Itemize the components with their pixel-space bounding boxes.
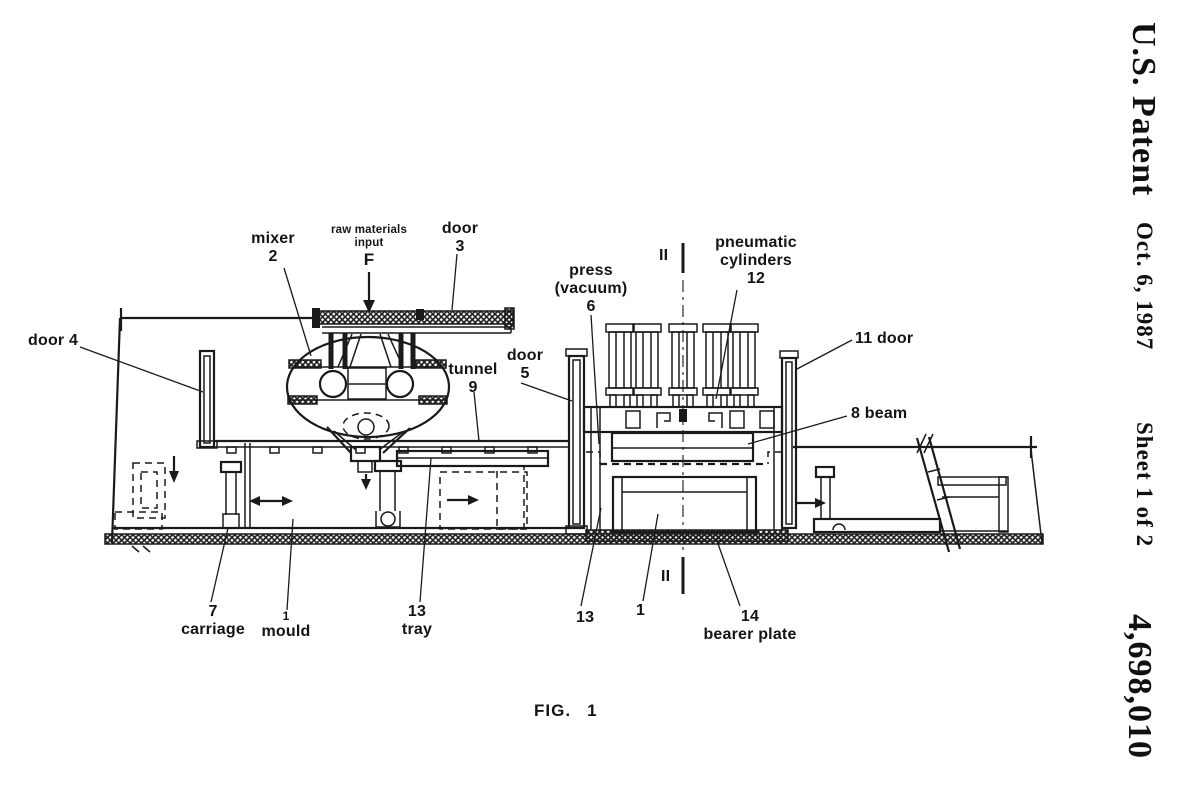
label-door-11: 11 door xyxy=(855,330,913,348)
label-bearer-plate-14: 14 bearer plate xyxy=(688,608,812,644)
label-pneumatic-cylinders-12: pneumatic cylinders 12 xyxy=(706,234,806,288)
label-tray-13: 13 tray xyxy=(394,603,440,639)
label-mixer-text: mixer xyxy=(242,230,304,248)
label-raw-materials-input: raw materials input F xyxy=(326,224,412,269)
patent-sheet-number: Sheet 1 of 2 xyxy=(1131,422,1157,547)
patent-page: mixer 2 raw materials input F door 3 doo… xyxy=(0,0,1200,800)
label-press-vacuum-6: press (vacuum) 6 xyxy=(552,262,630,316)
label-tunnel-9: tunnel 9 xyxy=(440,361,506,397)
label-door-3: door 3 xyxy=(434,220,486,256)
label-mould-1: 1 mould xyxy=(256,610,316,641)
figure-caption: FIG.1 xyxy=(534,701,598,721)
label-door-4: door 4 xyxy=(28,332,78,350)
label-section-mark-top: II xyxy=(659,247,668,265)
label-ref-13: 13 xyxy=(576,609,594,627)
label-section-mark-bottom: II xyxy=(661,568,670,586)
patent-office-title: U.S. Patent xyxy=(1124,22,1162,196)
label-ref-1: 1 xyxy=(636,602,645,620)
label-beam-8: 8 beam xyxy=(851,405,907,423)
label-mixer-num: 2 xyxy=(242,248,304,266)
label-flow-symbol: F xyxy=(326,250,412,269)
patent-number: 4,698,010 xyxy=(1120,614,1158,759)
label-mixer: mixer 2 xyxy=(242,230,304,266)
figure-1-drawing xyxy=(0,0,1200,800)
label-door-5: door 5 xyxy=(500,347,550,383)
label-carriage-7: 7 carriage xyxy=(176,603,250,639)
patent-date: Oct. 6, 1987 xyxy=(1131,222,1157,350)
